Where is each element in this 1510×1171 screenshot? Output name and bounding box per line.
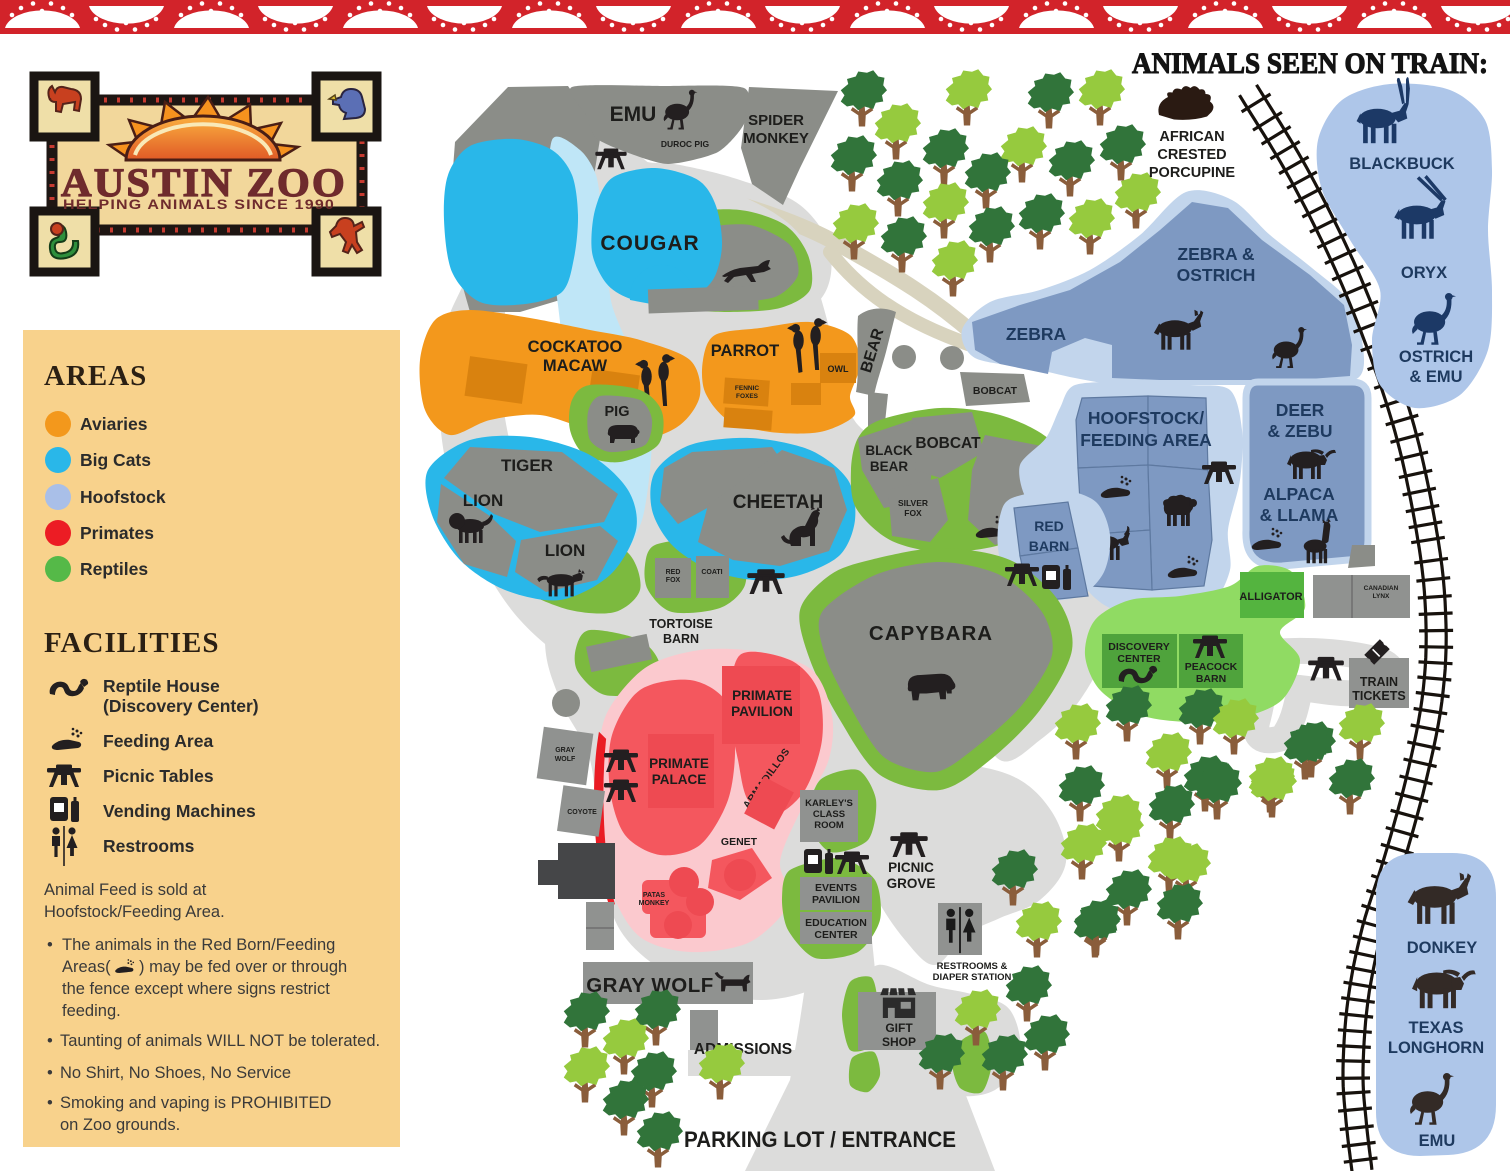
svg-text:AREAS: AREAS (44, 360, 147, 392)
svg-text:CANADIAN: CANADIAN (1364, 585, 1399, 592)
svg-text:ZEBRA: ZEBRA (1006, 324, 1067, 344)
svg-text:PALACE: PALACE (652, 772, 707, 787)
svg-text:No Shirt, No Shoes, No Service: No Shirt, No Shoes, No Service (60, 1064, 291, 1082)
svg-text:RED: RED (666, 569, 681, 576)
svg-text:LONGHORN: LONGHORN (1388, 1039, 1484, 1057)
svg-text:SPIDER: SPIDER (748, 112, 804, 129)
svg-text:BARN: BARN (663, 632, 699, 646)
svg-text:OWL: OWL (828, 364, 849, 374)
svg-text:BLACK: BLACK (865, 443, 912, 458)
svg-text:FOX: FOX (666, 577, 681, 584)
svg-text:EMU: EMU (610, 103, 657, 126)
svg-text:Animal Feed is sold at: Animal Feed is sold at (44, 881, 207, 899)
svg-text:CRESTED: CRESTED (1157, 147, 1226, 163)
svg-text:RED: RED (1034, 518, 1064, 534)
svg-text:ANIMALS SEEN ON TRAIN:: ANIMALS SEEN ON TRAIN: (1132, 47, 1488, 80)
svg-text:Smoking and vaping is PROHIBIT: Smoking and vaping is PROHIBITED (60, 1094, 332, 1112)
svg-text:DUROC PIG: DUROC PIG (661, 139, 710, 149)
svg-text:FACILITIES: FACILITIES (44, 627, 219, 659)
svg-text:Primates: Primates (80, 523, 154, 543)
svg-text:) may be fed over or through: ) may be fed over or through (139, 958, 347, 976)
svg-text:& ZEBU: & ZEBU (1267, 421, 1332, 441)
svg-text:CHEETAH: CHEETAH (733, 492, 823, 513)
svg-text:PATAS: PATAS (643, 892, 665, 899)
svg-text:SILVER: SILVER (898, 498, 928, 508)
svg-text:ORYX: ORYX (1401, 264, 1447, 282)
svg-text:GRAY WOLF: GRAY WOLF (586, 974, 714, 997)
svg-text:COUGAR: COUGAR (600, 232, 699, 255)
svg-text:PRIMATE: PRIMATE (649, 756, 709, 771)
svg-text:Taunting of animals WILL NOT b: Taunting of animals WILL NOT be tolerate… (60, 1032, 380, 1050)
svg-text:ROOM: ROOM (814, 820, 844, 831)
svg-text:& EMU: & EMU (1409, 368, 1462, 386)
svg-text:TORTOISE: TORTOISE (649, 617, 712, 631)
svg-text:Feeding Area: Feeding Area (103, 731, 213, 751)
svg-text:RESTROOMS &: RESTROOMS & (937, 961, 1008, 972)
svg-text:BOBCAT: BOBCAT (915, 435, 981, 452)
svg-text:Restrooms: Restrooms (103, 836, 195, 856)
svg-text:•: • (47, 1094, 53, 1112)
svg-text:COATI: COATI (701, 569, 722, 576)
svg-text:OSTRICH: OSTRICH (1399, 348, 1473, 366)
svg-text:EMU: EMU (1419, 1132, 1456, 1150)
svg-text:The animals in the Red Born/Fe: The animals in the Red Born/Feeding (62, 936, 335, 954)
svg-text:CENTER: CENTER (814, 929, 858, 941)
svg-text:OSTRICH: OSTRICH (1177, 265, 1256, 285)
svg-text:BEAR: BEAR (870, 459, 909, 474)
svg-text:COYOTE: COYOTE (567, 809, 597, 816)
svg-text:Areas(: Areas( (62, 958, 111, 976)
svg-text:SHOP: SHOP (882, 1035, 916, 1049)
svg-text:TIGER: TIGER (501, 456, 553, 475)
svg-text:HOOFSTOCK/: HOOFSTOCK/ (1088, 408, 1204, 428)
svg-text:Big Cats: Big Cats (80, 450, 151, 470)
svg-text:PEACOCK: PEACOCK (1185, 661, 1238, 673)
svg-text:DEER: DEER (1276, 400, 1325, 420)
svg-text:BOBCAT: BOBCAT (973, 385, 1018, 397)
svg-text:•: • (47, 1064, 53, 1082)
svg-text:GIFT: GIFT (885, 1021, 913, 1035)
svg-text:BLACKBUCK: BLACKBUCK (1349, 155, 1454, 173)
svg-text:ALLIGATOR: ALLIGATOR (1239, 591, 1302, 603)
svg-text:LYNX: LYNX (1373, 593, 1390, 600)
svg-text:DIAPER STATION: DIAPER STATION (933, 972, 1012, 983)
svg-text:feeding.: feeding. (62, 1002, 121, 1020)
svg-text:•: • (47, 936, 53, 954)
svg-text:MONKEY: MONKEY (743, 130, 809, 147)
svg-text:BARN: BARN (1029, 538, 1069, 554)
svg-text:DONKEY: DONKEY (1407, 939, 1478, 957)
svg-text:MONKEY: MONKEY (639, 900, 670, 907)
svg-text:BARN: BARN (1196, 673, 1226, 685)
svg-text:Hoofstock: Hoofstock (80, 487, 166, 507)
svg-text:Hoofstock/Feeding Area.: Hoofstock/Feeding Area. (44, 903, 225, 921)
svg-text:PARKING LOT / ENTRANCE: PARKING LOT / ENTRANCE (684, 1127, 956, 1152)
svg-text:Aviaries: Aviaries (80, 414, 148, 434)
svg-text:CAPYBARA: CAPYBARA (869, 622, 993, 645)
svg-text:Picnic Tables: Picnic Tables (103, 766, 214, 786)
svg-text:COCKATOO: COCKATOO (528, 338, 623, 356)
svg-text:GENET: GENET (721, 836, 758, 848)
svg-text:FOX: FOX (904, 508, 922, 518)
svg-text:KARLEY'S: KARLEY'S (805, 798, 853, 809)
svg-text:LION: LION (545, 541, 586, 560)
svg-text:PORCUPINE: PORCUPINE (1149, 165, 1236, 181)
svg-text:(Discovery Center): (Discovery Center) (103, 696, 259, 716)
svg-text:DISCOVERY: DISCOVERY (1108, 641, 1169, 653)
svg-text:PARROT: PARROT (711, 342, 779, 360)
svg-text:CLASS: CLASS (813, 809, 845, 820)
svg-text:HELPING ANIMALS SINCE 1990: HELPING ANIMALS SINCE 1990 (63, 197, 335, 212)
svg-text:FEEDING AREA: FEEDING AREA (1080, 430, 1212, 450)
svg-text:the fence except where signs r: the fence except where signs restrict (62, 980, 330, 998)
svg-text:GROVE: GROVE (887, 876, 936, 891)
svg-text:TICKETS: TICKETS (1352, 689, 1405, 703)
svg-text:PAVILION: PAVILION (731, 704, 793, 719)
svg-text:EVENTS: EVENTS (815, 882, 857, 894)
svg-text:Vending Machines: Vending Machines (103, 801, 256, 821)
svg-text:GRAY: GRAY (555, 747, 575, 754)
svg-text:PRIMATE: PRIMATE (732, 688, 792, 703)
svg-text:PIG: PIG (605, 404, 630, 420)
svg-text:PAVILION: PAVILION (812, 894, 860, 906)
svg-text:FOXES: FOXES (736, 393, 759, 400)
svg-text:•: • (47, 1032, 53, 1050)
svg-text:CENTER: CENTER (1117, 653, 1161, 665)
svg-text:TEXAS: TEXAS (1408, 1019, 1463, 1037)
svg-text:WOLF: WOLF (555, 756, 576, 763)
svg-text:MACAW: MACAW (543, 357, 608, 375)
svg-text:Reptile House: Reptile House (103, 676, 220, 696)
svg-text:ALPACA: ALPACA (1263, 484, 1335, 504)
svg-text:Reptiles: Reptiles (80, 559, 148, 579)
svg-text:FENNIC: FENNIC (735, 385, 760, 392)
svg-text:TRAIN: TRAIN (1360, 675, 1398, 689)
svg-text:PICNIC: PICNIC (888, 860, 934, 875)
svg-text:on Zoo grounds.: on Zoo grounds. (60, 1116, 180, 1134)
svg-text:EDUCATION: EDUCATION (805, 917, 867, 929)
svg-text:LION: LION (463, 491, 504, 510)
svg-text:AFRICAN: AFRICAN (1159, 129, 1224, 145)
svg-text:ZEBRA &: ZEBRA & (1177, 244, 1254, 264)
